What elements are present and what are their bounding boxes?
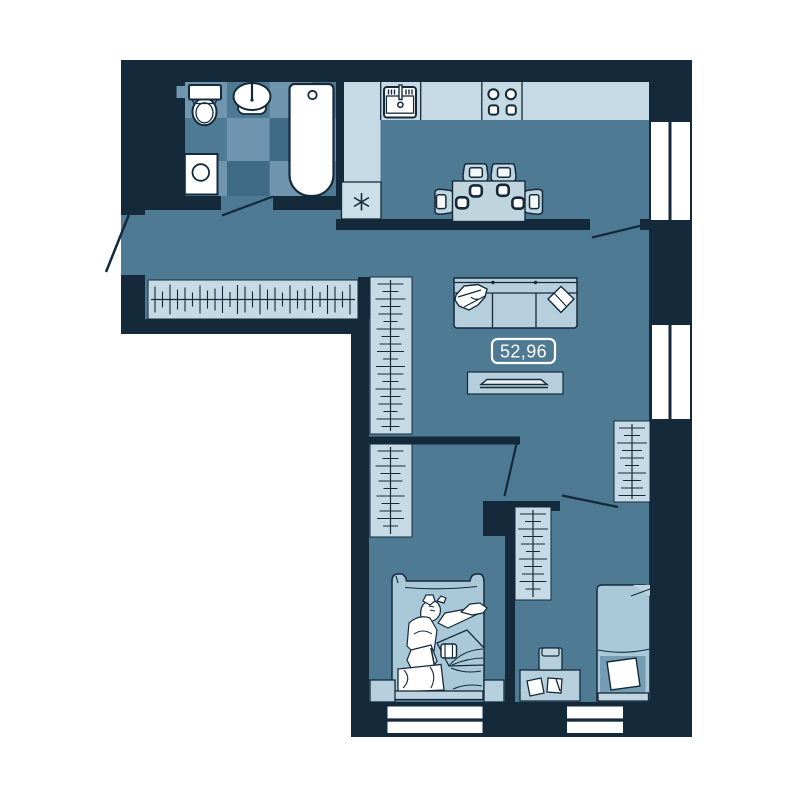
svg-text:52,96: 52,96 [500,342,547,362]
